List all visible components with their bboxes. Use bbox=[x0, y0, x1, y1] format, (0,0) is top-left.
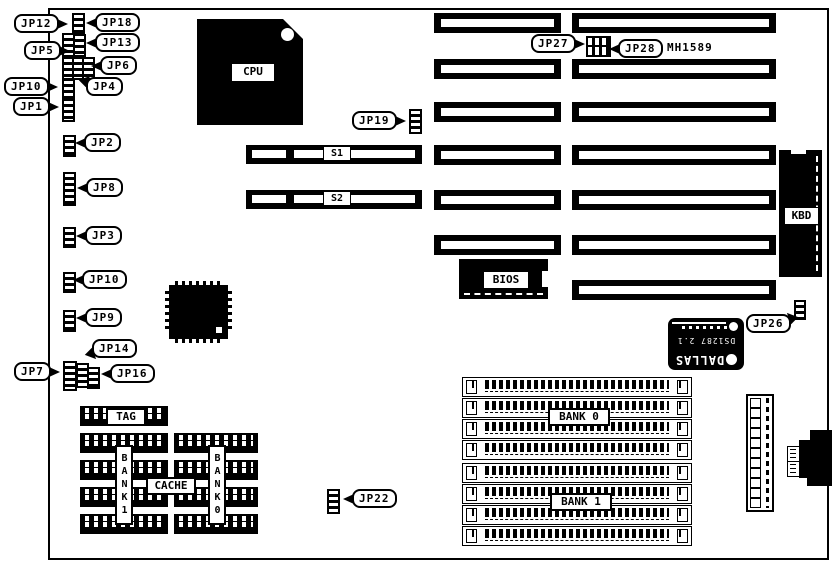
isa-slot bbox=[572, 13, 776, 33]
vesa-slot-s2: S2 bbox=[246, 190, 422, 209]
kbd-notch bbox=[791, 150, 806, 154]
jumper-jp19 bbox=[409, 109, 422, 134]
callout-pointer bbox=[77, 183, 88, 193]
callout-jp19: JP19 bbox=[352, 111, 397, 130]
dallas-model: DS1287 2.1 bbox=[677, 337, 735, 346]
simm-dash bbox=[485, 391, 669, 392]
callout-pointer bbox=[609, 44, 620, 54]
isa-slot bbox=[434, 102, 561, 122]
callout-label: JP8 bbox=[93, 181, 116, 194]
motherboard-diagram: CPU S1 S2 BIOS KBD bbox=[0, 0, 832, 565]
bios-dashed-line bbox=[464, 293, 543, 295]
callout-jp2: JP2 bbox=[84, 133, 121, 152]
dallas-logo-icon bbox=[726, 355, 737, 366]
callout-jp27: JP27 bbox=[531, 34, 576, 53]
callout-label: JP26 bbox=[753, 317, 784, 330]
callout-pointer bbox=[47, 82, 58, 92]
simm-socket bbox=[462, 463, 692, 483]
kbd-label: KBD bbox=[784, 207, 819, 225]
callout-jp16: JP16 bbox=[110, 364, 155, 383]
callout-jp10-mid: JP10 bbox=[82, 270, 127, 289]
callout-pointer bbox=[75, 138, 86, 148]
power-connector-dashes bbox=[766, 398, 769, 508]
qfp-pin1-dot bbox=[216, 327, 222, 333]
callout-jp12: JP12 bbox=[14, 14, 59, 33]
simm-socket bbox=[462, 440, 692, 460]
simm-dash bbox=[485, 454, 669, 455]
callout-label: JP14 bbox=[99, 342, 130, 355]
isa-slot bbox=[434, 145, 561, 165]
callout-jp1: JP1 bbox=[13, 97, 50, 116]
callout-label: JP10 bbox=[89, 273, 120, 286]
callout-pointer bbox=[574, 39, 585, 49]
simm-clip-right bbox=[677, 529, 688, 543]
qfp-pins-bottom bbox=[175, 339, 222, 343]
jumper-jp13 bbox=[73, 34, 86, 57]
callout-jp22: JP22 bbox=[352, 489, 397, 508]
simm-clip-left bbox=[466, 466, 477, 480]
callout-label: JP28 bbox=[625, 42, 656, 55]
jumper-jp1 bbox=[62, 99, 75, 122]
jumper-jp3 bbox=[63, 227, 76, 248]
simm-socket bbox=[462, 377, 692, 397]
isa-slot bbox=[434, 59, 561, 79]
bank0-label: BANK 0 bbox=[548, 408, 610, 426]
vesa-slot-s1: S1 bbox=[246, 145, 422, 164]
isa-slot bbox=[572, 280, 776, 300]
isa-slot bbox=[434, 190, 561, 210]
jumper-jp22 bbox=[327, 489, 340, 514]
qfp-pins-left bbox=[165, 291, 169, 333]
callout-pointer bbox=[49, 367, 60, 377]
jumper-jp8 bbox=[63, 172, 76, 206]
callout-label: JP7 bbox=[21, 365, 44, 378]
qfp-pins-right bbox=[228, 291, 232, 333]
isa-slot bbox=[572, 102, 776, 122]
jumper-jp9 bbox=[63, 310, 76, 332]
callout-label: JP1 bbox=[20, 100, 43, 113]
cache-label: CACHE bbox=[146, 477, 196, 495]
power-connector-pins bbox=[750, 398, 761, 508]
s1-label: S1 bbox=[323, 146, 351, 161]
callout-pointer bbox=[343, 494, 354, 504]
jumper-jp16 bbox=[87, 367, 100, 389]
callout-jp9: JP9 bbox=[85, 308, 122, 327]
callout-label: JP6 bbox=[107, 59, 130, 72]
bank0-vertical-label: BANK0 bbox=[208, 445, 226, 525]
bios-label: BIOS bbox=[483, 271, 529, 289]
callout-jp28: JP28 bbox=[618, 39, 663, 58]
callout-jp7: JP7 bbox=[14, 362, 51, 381]
isa-slot bbox=[434, 235, 561, 255]
simm-clip-left bbox=[466, 529, 477, 543]
callout-label: JP13 bbox=[102, 36, 133, 49]
dallas-top-line bbox=[672, 322, 726, 324]
callout-jp10-top: JP10 bbox=[4, 77, 49, 96]
jumper-jp28 bbox=[586, 45, 611, 57]
callout-pointer bbox=[91, 61, 102, 71]
jumper-jp18 bbox=[72, 13, 85, 35]
simm-contacts bbox=[485, 466, 669, 475]
qfp-pins-top bbox=[175, 281, 222, 285]
callout-label: JP16 bbox=[117, 367, 148, 380]
bank1-label: BANK 1 bbox=[550, 493, 612, 511]
dallas-rtc-chip: DALLAS DS1287 2.1 bbox=[668, 318, 744, 370]
callout-label: JP22 bbox=[359, 492, 390, 505]
din-pin-block bbox=[787, 461, 800, 477]
callout-label: JP5 bbox=[31, 44, 54, 57]
chipset-qfp-chip bbox=[165, 281, 232, 343]
simm-dash bbox=[485, 433, 669, 434]
simm-clip-right bbox=[677, 508, 688, 522]
callout-jp26: JP26 bbox=[746, 314, 791, 333]
simm-dash bbox=[485, 519, 669, 520]
simm-dash bbox=[485, 477, 669, 478]
din-pin-block bbox=[787, 446, 800, 462]
callout-label: JP12 bbox=[21, 17, 52, 30]
simm-clip-left bbox=[466, 487, 477, 501]
simm-clip-left bbox=[466, 508, 477, 522]
simm-clip-left bbox=[466, 443, 477, 457]
isa-slot bbox=[572, 145, 776, 165]
callout-label: JP18 bbox=[102, 16, 133, 29]
simm-clip-right bbox=[677, 487, 688, 501]
keyboard-din-connector bbox=[807, 477, 832, 486]
callout-pointer bbox=[76, 313, 87, 323]
callout-jp18: JP18 bbox=[95, 13, 140, 32]
cpu-pin1-dot bbox=[281, 28, 294, 41]
callout-jp14: JP14 bbox=[92, 339, 137, 358]
simm-clip-right bbox=[677, 443, 688, 457]
simm-clip-left bbox=[466, 380, 477, 394]
simm-contacts bbox=[485, 529, 669, 538]
simm-clip-right bbox=[677, 401, 688, 415]
isa-slot bbox=[434, 13, 561, 33]
dallas-rotated-text: DALLAS DS1287 2.1 bbox=[672, 326, 740, 367]
callout-pointer bbox=[76, 231, 87, 241]
callout-pointer bbox=[86, 38, 97, 48]
isa-slot bbox=[572, 235, 776, 255]
callout-pointer bbox=[57, 19, 68, 29]
callout-label: JP27 bbox=[538, 37, 569, 50]
callout-jp3: JP3 bbox=[85, 226, 122, 245]
simm-contacts bbox=[485, 443, 669, 452]
callout-label: JP10 bbox=[11, 80, 42, 93]
keyboard-din-connector bbox=[799, 440, 832, 478]
callout-label: JP4 bbox=[93, 80, 116, 93]
power-connector bbox=[746, 394, 774, 512]
callout-label: JP9 bbox=[92, 311, 115, 324]
simm-socket bbox=[462, 526, 692, 546]
callout-pointer bbox=[59, 46, 70, 56]
callout-jp13: JP13 bbox=[95, 33, 140, 52]
bank1-vertical-label: BANK1 bbox=[115, 445, 133, 525]
dallas-brand-row: DALLAS bbox=[675, 353, 737, 367]
callout-jp5: JP5 bbox=[24, 41, 61, 60]
isa-slot bbox=[572, 59, 776, 79]
dallas-ticks bbox=[678, 326, 734, 329]
callout-label: JP2 bbox=[91, 136, 114, 149]
cpu-label: CPU bbox=[231, 63, 275, 82]
callout-jp8: JP8 bbox=[86, 178, 123, 197]
callout-pointer bbox=[101, 369, 112, 379]
isa-slot bbox=[572, 190, 776, 210]
jumper-jp10 bbox=[62, 79, 75, 101]
tag-label: TAG bbox=[106, 408, 146, 426]
simm-clip-left bbox=[466, 422, 477, 436]
simm-clip-right bbox=[677, 380, 688, 394]
simm-contacts bbox=[485, 380, 669, 389]
simm-dash bbox=[485, 540, 669, 541]
simm-clip-right bbox=[677, 466, 688, 480]
simm-clip-right bbox=[677, 422, 688, 436]
jumper-jp7 bbox=[63, 361, 77, 391]
callout-label: JP19 bbox=[359, 114, 390, 127]
dallas-brand: DALLAS bbox=[675, 353, 724, 367]
callout-jp4: JP4 bbox=[86, 77, 123, 96]
callout-pointer bbox=[395, 116, 406, 126]
s2-label: S2 bbox=[323, 191, 351, 206]
callout-label: JP3 bbox=[92, 229, 115, 242]
bios-notch bbox=[542, 271, 548, 287]
callout-pointer bbox=[73, 275, 84, 285]
simm-clip-left bbox=[466, 401, 477, 415]
callout-pointer bbox=[48, 102, 59, 112]
mh1589-label: MH1589 bbox=[667, 41, 713, 54]
callout-pointer bbox=[86, 18, 97, 28]
callout-jp6: JP6 bbox=[100, 56, 137, 75]
